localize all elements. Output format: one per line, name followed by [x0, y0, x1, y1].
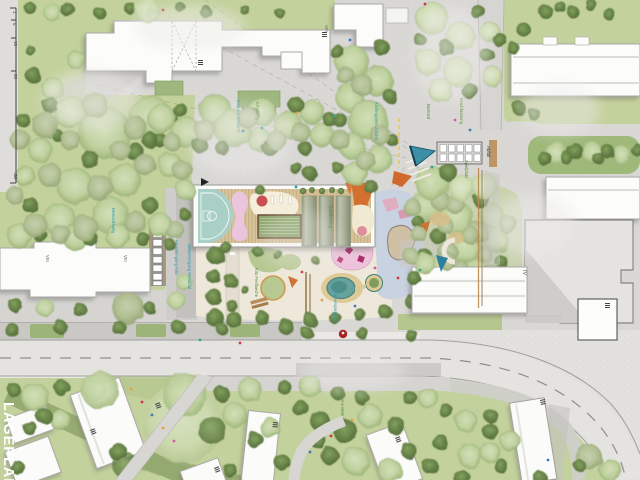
svg-text:10: 10: [13, 41, 18, 47]
svg-text:Spielplatz: Spielplatz: [464, 160, 469, 178]
svg-text:Erschliessung: Erschliessung: [459, 98, 464, 125]
svg-text:Haupteingang Kita: Haupteingang Kita: [174, 240, 179, 275]
svg-text:IV: IV: [521, 270, 527, 276]
svg-text:VIII: VIII: [45, 255, 50, 262]
svg-text:LAGEPLAN: LAGEPLAN: [0, 402, 16, 480]
svg-text:Nebeneingang Personal: Nebeneingang Personal: [187, 244, 192, 289]
svg-text:Gruene Mitte: Gruene Mitte: [340, 392, 345, 417]
svg-text:20: 20: [13, 74, 18, 80]
svg-text:VIII: VIII: [324, 25, 329, 32]
svg-text:Kita Freiflaeche: Kita Freiflaeche: [254, 268, 259, 298]
svg-text:Bestandsweg: Bestandsweg: [111, 208, 116, 234]
svg-text:Kindergarten Zufahrt: Kindergarten Zufahrt: [374, 102, 379, 141]
svg-text:50: 50: [13, 174, 18, 180]
svg-text:VIII: VIII: [123, 255, 128, 262]
svg-text:Abfall: Abfall: [486, 146, 491, 157]
svg-text:Bestand: Bestand: [426, 104, 431, 120]
svg-text:Wasserspielplatz: Wasserspielplatz: [333, 290, 338, 322]
